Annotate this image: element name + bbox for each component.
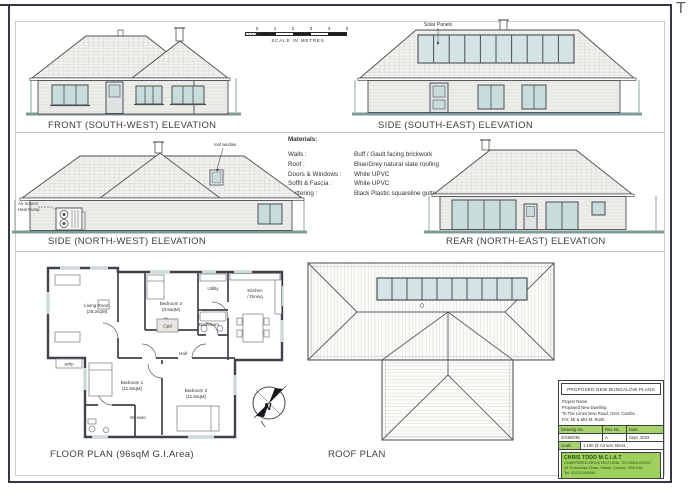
rear-elevation-label: REAR (NORTH-EAST) ELEVATION: [446, 236, 606, 247]
window: [52, 85, 88, 105]
room-label-living: Living Room: [84, 303, 110, 308]
bath: [200, 312, 226, 321]
project-name-label: Project Name: [559, 397, 663, 404]
wing-roof-plan: [382, 360, 513, 440]
house-side-se: [358, 20, 636, 113]
room-label-hall: Hall: [179, 351, 187, 356]
cistern: [88, 419, 96, 424]
bed: [177, 406, 219, 431]
room-area-bedroom2: (11.5sqM): [186, 394, 207, 399]
title-block: PROPOSED NEW BUNGALOW PLANS Project Name…: [558, 380, 664, 479]
roof-plan-label: ROOF PLAN: [328, 449, 386, 460]
basin: [103, 427, 108, 432]
rev-no-header: Rev No.: [603, 426, 627, 434]
heat-pump-label-line1: Air Source: [18, 201, 39, 206]
corner-mark: T: [676, 0, 686, 18]
house-side-nw: [20, 142, 304, 231]
worktop: [200, 274, 226, 281]
north-arrow-compass: N: [249, 383, 289, 431]
front-elevation-drawing: [26, 20, 241, 120]
heat-pump-label-line2: Heat Pump: [18, 207, 40, 212]
air-source-heat-pump-unit: [56, 208, 85, 230]
room-area-bedroom3: (8.5sqM): [162, 307, 181, 312]
roof-plan-drawing: [302, 252, 560, 448]
room-area-bedroom1: (11.6sqM): [122, 386, 143, 391]
roof-vent: [118, 30, 123, 36]
room-area-living: (25.2sqM): [87, 309, 108, 314]
window: [136, 86, 162, 104]
flue: [500, 20, 507, 30]
architect-stamp: CHRIS TODD M.C.I.A.T CHARTERED ARCHITECT…: [561, 452, 661, 478]
drawing-info-table: Drawing No. Rev No. Date 20/490/39 A Sep…: [559, 425, 663, 442]
scale-row: Scale 1:100 @ A3 size sheet.: [559, 442, 663, 450]
bed: [89, 363, 112, 396]
room-label-bathroom: Bathroom: [199, 322, 219, 327]
room-label-bedroom1: Bedroom 1: [121, 380, 144, 385]
room-label-bedroom2: Bedroom 2: [185, 388, 208, 393]
title-block-header: PROPOSED NEW BUNGALOW PLANS: [561, 383, 661, 395]
side-se-elevation-drawing: Solar Panels: [352, 18, 642, 118]
room-label-ensuite: En-suite: [130, 415, 146, 420]
flue-plan: [420, 304, 424, 308]
scale-value: 1:100 @ A3 size sheet.: [581, 442, 663, 450]
scale-bar-caption: SCALE IN METRES: [245, 38, 351, 43]
date-header: Date: [627, 426, 663, 434]
sofa: [55, 275, 80, 285]
drawing-sheet: T: [0, 0, 700, 497]
compass-north-letter: N: [264, 402, 272, 413]
scale-bar: 012345 SCALE IN METRES: [245, 26, 351, 43]
project-description: Proposed New Dwelling To The Limes New R…: [559, 404, 663, 425]
scale-bar-numbers: 012345: [254, 26, 350, 31]
scale-bar-bar: [245, 32, 351, 36]
sofa: [55, 332, 80, 342]
roof: [434, 150, 632, 194]
side-se-elevation-label: SIDE (SOUTH-EAST) ELEVATION: [378, 120, 533, 131]
drawing-no-value: 20/490/39: [559, 434, 603, 442]
window: [172, 86, 204, 104]
side-nw-elevation-drawing: Air Source Heat Pump roof window: [12, 136, 307, 236]
dining-table: [243, 314, 263, 342]
room-label-kitchen2: / Dining: [247, 294, 263, 299]
scale-label: Scale: [559, 442, 581, 450]
room-label-kitchen: Kitchen: [247, 288, 263, 293]
house-rear: [432, 140, 634, 230]
room-label-cpd: Cpd: [163, 324, 172, 329]
scale-bar-tail: [245, 32, 257, 36]
wc: [89, 426, 95, 432]
front-elevation-label: FRONT (SOUTH-WEST) ELEVATION: [48, 120, 216, 131]
roof-window-label: roof window: [214, 142, 237, 147]
project-line-3: For: Mr & Mrs M. Rush.: [562, 417, 660, 423]
small-window: [592, 202, 605, 215]
flue: [155, 142, 162, 153]
kitchen-counter: [230, 274, 280, 281]
room-label-utility: Utility: [207, 286, 219, 291]
architect-phone: Tel. 01223 502499: [564, 471, 658, 476]
flue: [482, 140, 489, 150]
date-value: Sept. 2023: [627, 434, 663, 442]
room-label-ashp: ashp: [64, 362, 74, 367]
side-nw-elevation-label: SIDE (NORTH-WEST) ELEVATION: [48, 236, 206, 247]
room-label-bedroom3: Bedroom 3: [160, 301, 183, 306]
row-separator-1: [15, 132, 665, 133]
rev-no-value: A: [603, 434, 627, 442]
kitchen-counter: [275, 280, 282, 314]
solar-panels-label: Solar Panels: [424, 22, 453, 28]
compass-needle-north: [269, 388, 283, 403]
rear-elevation-drawing: [424, 138, 664, 236]
house-front: [30, 28, 230, 114]
flue: [176, 28, 183, 41]
bed: [147, 275, 164, 299]
floor-plan-label: FLOOR PLAN (96sqM G.I.Area): [50, 449, 194, 460]
drawing-no-header: Drawing No.: [559, 426, 603, 434]
